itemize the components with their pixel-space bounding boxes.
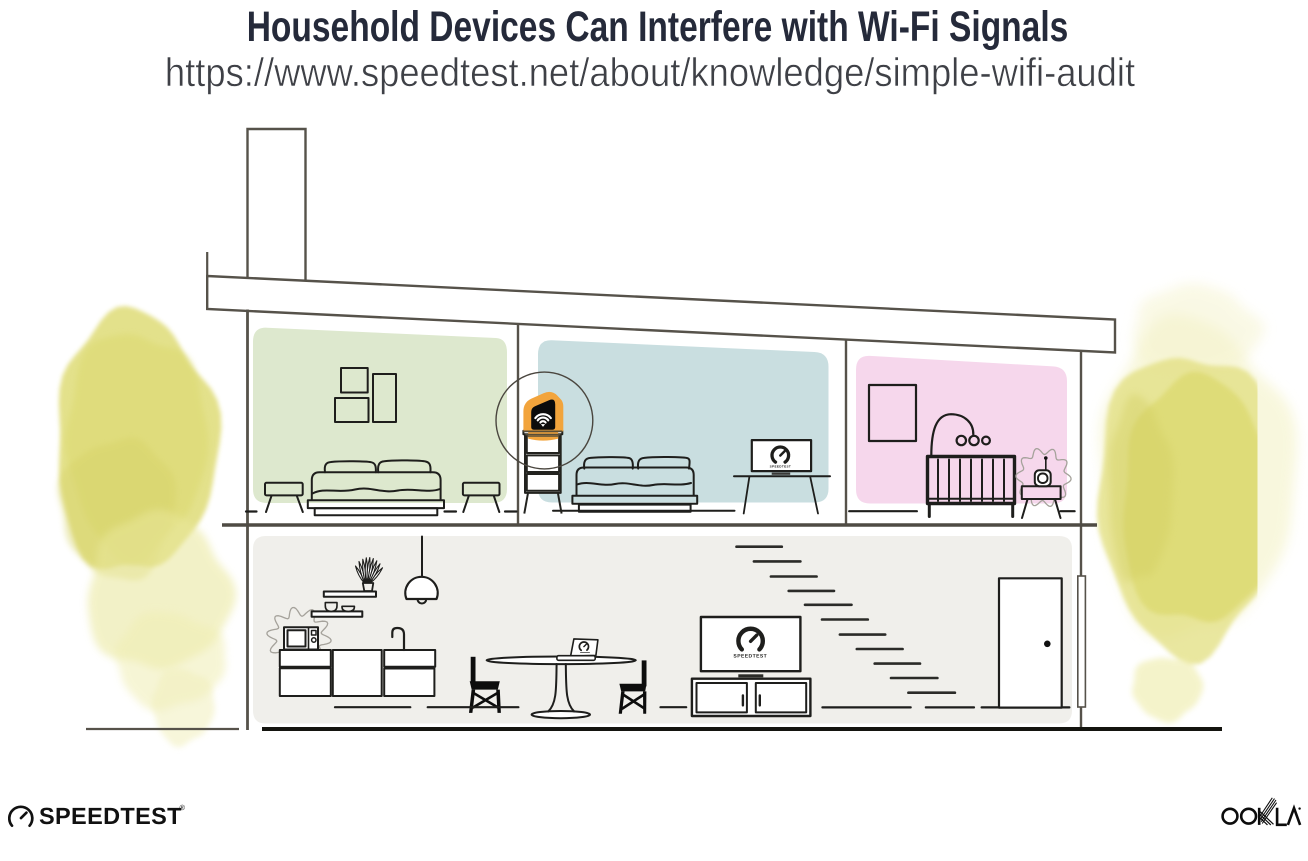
svg-text:®: ® xyxy=(180,803,186,812)
svg-text:SPEEDTEST: SPEEDTEST xyxy=(770,464,792,468)
svg-text:SPEEDTEST: SPEEDTEST xyxy=(39,803,182,829)
svg-text:SPEEDTEST: SPEEDTEST xyxy=(733,654,767,660)
